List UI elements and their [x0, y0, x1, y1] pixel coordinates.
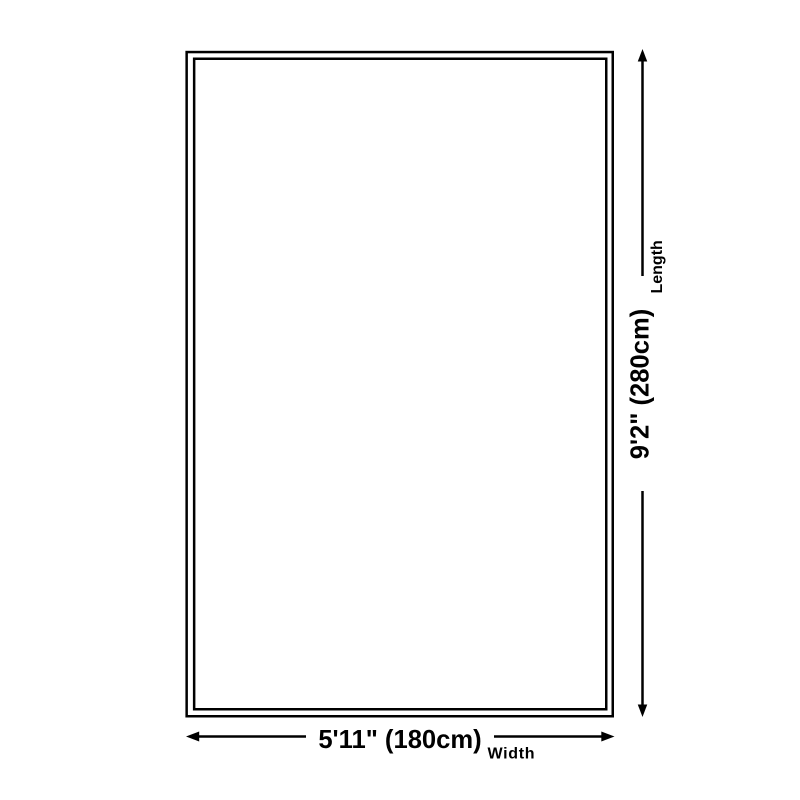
svg-text:9'2" (280cm): 9'2" (280cm): [627, 309, 655, 460]
svg-text:Width: Width: [488, 746, 536, 763]
svg-text:5'11" (180cm): 5'11" (180cm): [318, 726, 481, 754]
svg-text:Length: Length: [649, 240, 666, 293]
